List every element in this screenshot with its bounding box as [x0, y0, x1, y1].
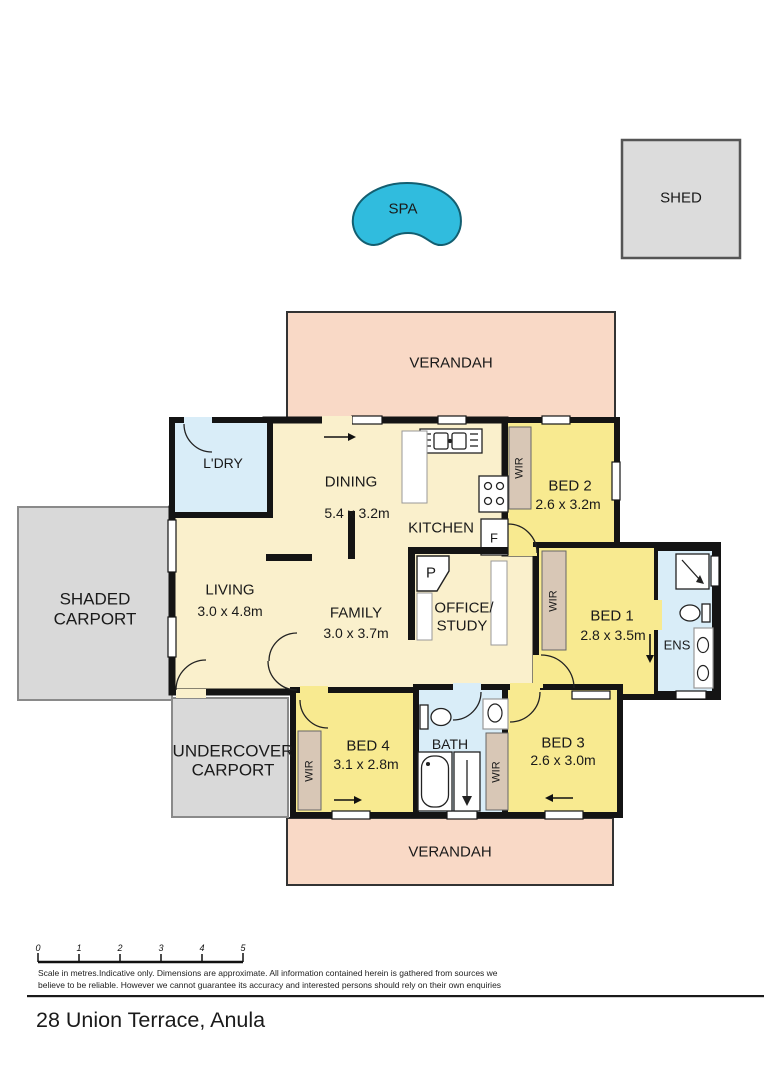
scale-tick-1: 1 [76, 943, 81, 953]
footer-rule [27, 995, 764, 997]
scale-tick-5: 5 [240, 943, 245, 953]
bath-label: BATH [432, 737, 468, 751]
bed2-dims: 2.6 x 3.2m [535, 497, 600, 511]
property-address: 28 Union Terrace, Anula [36, 1008, 265, 1033]
office-wall-left [408, 547, 415, 640]
dining-label: DINING [325, 475, 378, 490]
family-label: FAMILY [330, 606, 382, 621]
office-wall-top [408, 547, 508, 554]
office-label-2: STUDY [437, 619, 488, 634]
family-dims: 3.0 x 3.7m [323, 626, 388, 640]
bed3-wir-label: WIR [492, 761, 503, 782]
pantry-label: P [426, 566, 436, 581]
shaded-carport-label-2: CARPORT [54, 611, 137, 628]
disclaimer-line-1: Scale in metres.Indicative only. Dimensi… [38, 968, 498, 978]
ens-toilet-icon [680, 604, 710, 622]
shaded-carport-label-1: SHADED [60, 591, 131, 608]
bed4-wir-label: WIR [305, 760, 316, 781]
bed2-wir-label: WIR [515, 457, 526, 478]
undercover-carport-label-1: UNDERCOVER [173, 743, 294, 760]
ens-shower-icon [676, 554, 709, 589]
bed4-label: BED 4 [346, 739, 389, 754]
shed-label: SHED [660, 191, 702, 206]
disclaimer-line-2: believe to be reliable. However we canno… [38, 980, 501, 990]
living-dims: 3.0 x 4.8m [197, 604, 262, 618]
office-desk-left [417, 593, 432, 640]
bed2-label: BED 2 [548, 479, 591, 494]
floor-plan-page: SPA SHED VERANDAH VERANDAH SHADED CARPOR… [0, 0, 764, 1080]
office-label-1: OFFICE/ [434, 601, 493, 616]
bed1-wir-label: WIR [549, 590, 560, 611]
scale-tick-2: 2 [117, 943, 122, 953]
bed4-dims: 3.1 x 2.8m [333, 757, 398, 771]
living-label: LIVING [205, 583, 254, 598]
floor-plan-drawing [0, 0, 764, 1080]
undercover-carport-label-2: CARPORT [192, 762, 275, 779]
scale-tick-4: 4 [199, 943, 204, 953]
scale-tick-0: 0 [35, 943, 40, 953]
verandah-top-label: VERANDAH [409, 356, 492, 371]
bed3-label: BED 3 [541, 736, 584, 751]
dining-family-wall-stub [266, 554, 312, 561]
ens-vanity-icon [694, 628, 713, 688]
fridge-label: F [490, 532, 498, 545]
kitchen-sink-icon [420, 429, 482, 453]
ens-label: ENS [664, 639, 691, 652]
kitchen-label: KITCHEN [408, 521, 474, 536]
bed1-label: BED 1 [590, 609, 633, 624]
bed1-dims: 2.8 x 3.5m [580, 628, 645, 642]
scale-tick-3: 3 [158, 943, 163, 953]
bathtub-icon [418, 752, 452, 811]
cooktop-icon [479, 476, 508, 512]
spa-label: SPA [389, 202, 418, 217]
dining-dims: 5.4 x 3.2m [324, 506, 389, 520]
bath-shower-icon [454, 752, 480, 811]
scale-bar [38, 953, 243, 962]
verandah-bottom-label: VERANDAH [408, 845, 491, 860]
bed3-dims: 2.6 x 3.0m [530, 753, 595, 767]
bath-vanity-icon [483, 699, 508, 729]
laundry-label: L'DRY [203, 456, 243, 470]
kitchen-bench [402, 431, 427, 503]
